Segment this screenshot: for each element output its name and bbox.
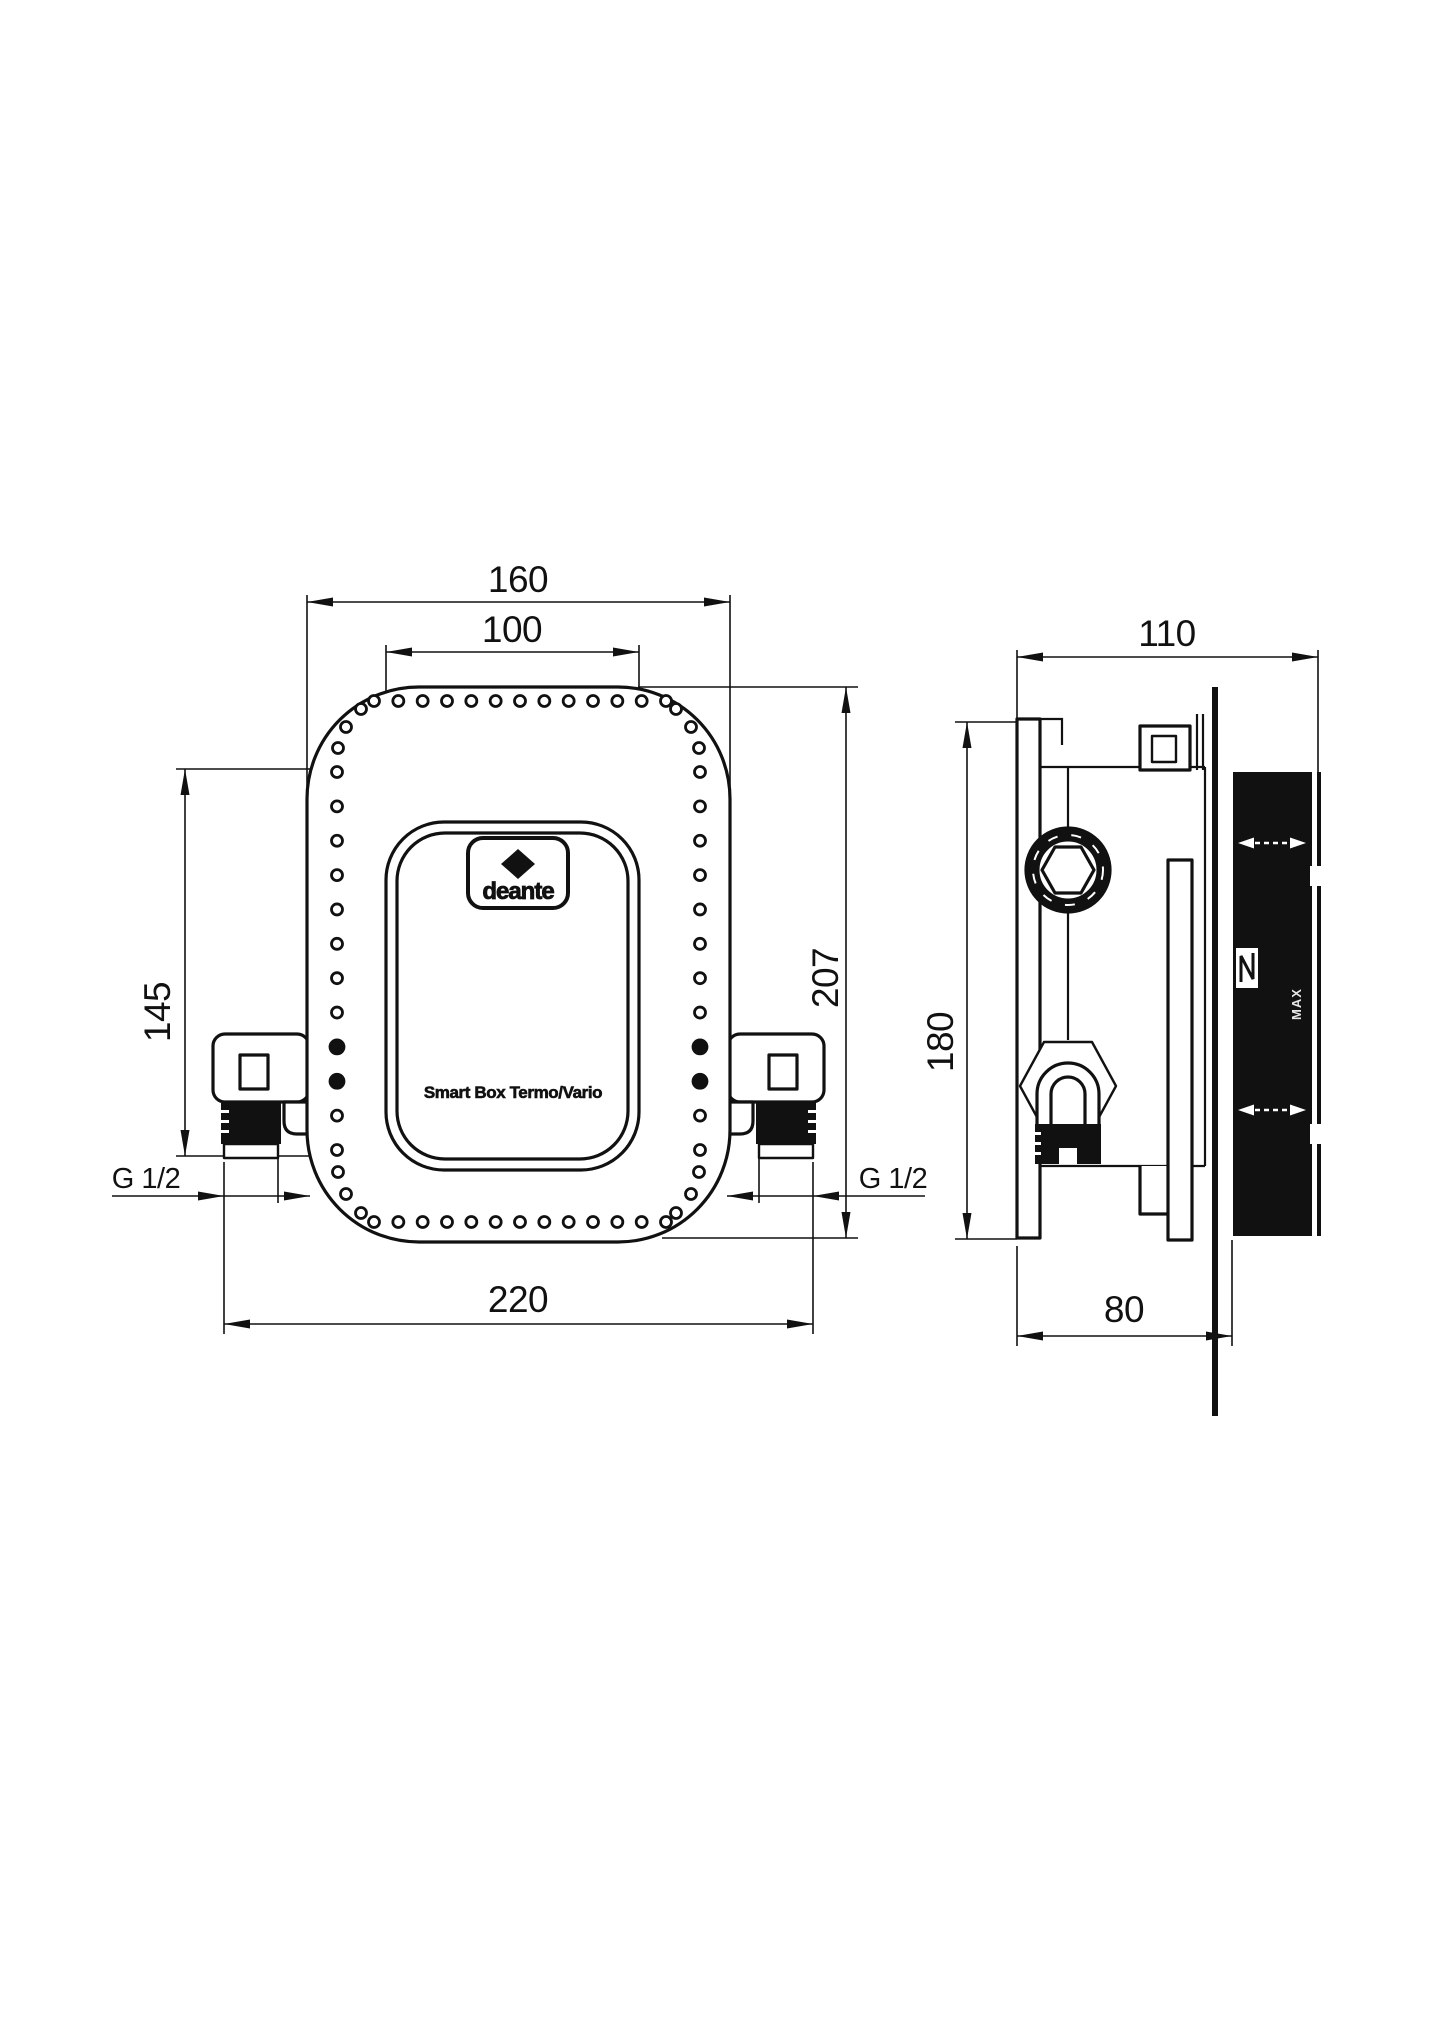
perforation-hole bbox=[563, 1217, 574, 1228]
elbow-notch bbox=[1059, 1148, 1077, 1164]
thread-ridge bbox=[220, 1130, 229, 1133]
perforation-hole bbox=[539, 696, 550, 707]
perforation-hole bbox=[695, 801, 706, 812]
perforation-hole bbox=[341, 1189, 352, 1200]
fixing-hole bbox=[693, 1040, 707, 1054]
perforation-hole bbox=[332, 938, 343, 949]
pipe-end bbox=[224, 1144, 278, 1158]
bracket-lug bbox=[213, 1034, 309, 1102]
thread-ridge bbox=[1033, 1152, 1041, 1155]
arrowhead bbox=[284, 1192, 310, 1201]
perforation-hole bbox=[466, 696, 477, 707]
perforation-hole bbox=[490, 1217, 501, 1228]
perforation-hole bbox=[356, 704, 367, 715]
deante-logo: deante bbox=[468, 838, 568, 908]
perforation-hole bbox=[332, 870, 343, 881]
hex-inlet-fitting bbox=[1026, 828, 1110, 912]
max-depth-label: MAX bbox=[1289, 988, 1304, 1020]
seam-notch bbox=[1310, 1124, 1323, 1144]
perforation-hole bbox=[588, 1217, 599, 1228]
perforation-hole bbox=[695, 904, 706, 915]
perforation-hole bbox=[332, 973, 343, 984]
arrowhead bbox=[181, 769, 190, 795]
thread-ridge bbox=[808, 1130, 817, 1133]
perforation-hole bbox=[332, 835, 343, 846]
perforation-hole bbox=[515, 696, 526, 707]
arrowhead bbox=[813, 1192, 839, 1201]
arrowhead bbox=[307, 598, 333, 607]
fixing-hole bbox=[330, 1074, 344, 1088]
perforation-hole bbox=[694, 743, 705, 754]
arrowhead bbox=[198, 1192, 224, 1201]
bracket-lug bbox=[728, 1034, 824, 1102]
seam-notch bbox=[1310, 866, 1323, 886]
perforation-hole bbox=[442, 1217, 453, 1228]
dimension-label: 110 bbox=[1138, 613, 1196, 654]
lug-plate-lines bbox=[1197, 714, 1203, 770]
perforation-hole bbox=[612, 1217, 623, 1228]
arrowhead bbox=[181, 1130, 190, 1156]
perforation-hole bbox=[333, 743, 344, 754]
perforation-hole bbox=[490, 696, 501, 707]
dimension-80: 80 bbox=[1017, 1240, 1232, 1346]
arrowhead bbox=[963, 1213, 972, 1239]
thread-ridge bbox=[220, 1110, 229, 1113]
thread-ridge bbox=[808, 1110, 817, 1113]
perforation-hole bbox=[661, 696, 672, 707]
arrowhead bbox=[1206, 1332, 1232, 1341]
perforation-hole bbox=[393, 1217, 404, 1228]
perforation-hole bbox=[332, 801, 343, 812]
dimension-label: 220 bbox=[488, 1279, 548, 1320]
dimension-label: 100 bbox=[482, 609, 542, 650]
thread-ridge bbox=[808, 1120, 817, 1123]
perforation-hole bbox=[636, 1217, 647, 1228]
perforation-hole bbox=[369, 696, 380, 707]
arrowhead bbox=[1292, 653, 1318, 662]
thread-label: G 1/2 bbox=[859, 1163, 927, 1195]
arrowhead bbox=[727, 1192, 753, 1201]
right-bracket-connector bbox=[727, 1034, 824, 1158]
perforation-hole bbox=[588, 696, 599, 707]
dimension-label: 180 bbox=[920, 1012, 961, 1072]
arrowhead bbox=[1017, 653, 1043, 662]
fixing-hole bbox=[330, 1040, 344, 1054]
perforation-hole bbox=[695, 870, 706, 881]
module-seam bbox=[1312, 772, 1317, 1236]
perforation-hole bbox=[563, 696, 574, 707]
perforation-hole bbox=[636, 696, 647, 707]
product-label: Smart Box Termo/Vario bbox=[424, 1083, 602, 1102]
thread-ridge bbox=[220, 1120, 229, 1123]
arrowhead bbox=[842, 687, 851, 713]
arrowhead bbox=[613, 648, 639, 657]
perforation-hole bbox=[393, 696, 404, 707]
perforation-hole bbox=[332, 1145, 343, 1156]
rail bbox=[1168, 860, 1192, 1240]
perforation-hole bbox=[539, 1217, 550, 1228]
thread-ridge bbox=[1033, 1142, 1041, 1145]
side-view: 110 180 80 bbox=[920, 613, 1323, 1416]
fixing-hole bbox=[693, 1074, 707, 1088]
threaded-pipe bbox=[756, 1102, 816, 1144]
thread-callout-left: G 1/2 bbox=[112, 1163, 310, 1201]
arrowhead bbox=[386, 648, 412, 657]
perforation-hole bbox=[369, 1217, 380, 1228]
dimension-180: 180 bbox=[920, 722, 1017, 1239]
perforation-hole bbox=[333, 1167, 344, 1178]
perforation-hole bbox=[695, 835, 706, 846]
perforation-hole bbox=[694, 1167, 705, 1178]
arrowhead bbox=[787, 1320, 813, 1329]
perforation-hole bbox=[695, 1110, 706, 1121]
perforation-hole bbox=[356, 1208, 367, 1219]
module-face bbox=[1317, 772, 1321, 1236]
depth-module: MAX bbox=[1233, 772, 1323, 1236]
thread-label: G 1/2 bbox=[112, 1163, 180, 1195]
smart-box-dimension-diagram: 160 100 145 207 bbox=[0, 0, 1445, 2043]
arrowhead bbox=[842, 1212, 851, 1238]
logo-text: deante bbox=[482, 878, 554, 905]
perforation-hole bbox=[332, 1007, 343, 1018]
technical-drawing-page: 160 100 145 207 bbox=[0, 0, 1445, 2043]
left-bracket-connector bbox=[213, 1034, 310, 1158]
perforation-hole bbox=[515, 1217, 526, 1228]
thread-ridge bbox=[1033, 1132, 1041, 1135]
dimension-label: 207 bbox=[805, 948, 846, 1008]
perforation-hole bbox=[686, 1189, 697, 1200]
perforation-hole bbox=[332, 767, 343, 778]
arrowhead bbox=[963, 722, 972, 748]
perforation-hole bbox=[332, 1110, 343, 1121]
perforation-hole bbox=[695, 767, 706, 778]
wall-line bbox=[1212, 687, 1218, 1416]
perforation-hole bbox=[417, 1217, 428, 1228]
perforation-hole bbox=[671, 1208, 682, 1219]
perforation-hole bbox=[341, 722, 352, 733]
perforation-hole bbox=[332, 904, 343, 915]
perforation-hole bbox=[686, 722, 697, 733]
dimension-label: 160 bbox=[488, 559, 548, 600]
perforation-hole bbox=[612, 696, 623, 707]
perforation-hole bbox=[417, 696, 428, 707]
arrowhead bbox=[704, 598, 730, 607]
dimension-label: 145 bbox=[137, 982, 178, 1042]
dimension-label: 80 bbox=[1104, 1289, 1144, 1330]
perforation-hole bbox=[442, 696, 453, 707]
plate-step bbox=[1040, 719, 1062, 745]
arrowhead bbox=[1017, 1332, 1043, 1341]
perforation-hole bbox=[466, 1217, 477, 1228]
perforation-hole bbox=[661, 1217, 672, 1228]
perforation-hole bbox=[671, 704, 682, 715]
perforation-hole bbox=[695, 973, 706, 984]
perforation-hole bbox=[695, 938, 706, 949]
arrowhead bbox=[224, 1320, 250, 1329]
pipe-end bbox=[759, 1144, 813, 1158]
perforation-hole bbox=[695, 1145, 706, 1156]
thread-callout-right: G 1/2 bbox=[727, 1163, 927, 1201]
threaded-pipe bbox=[221, 1102, 281, 1144]
perforation-hole bbox=[695, 1007, 706, 1018]
upper-lug bbox=[1140, 726, 1190, 770]
front-view: 160 100 145 207 bbox=[112, 559, 927, 1334]
